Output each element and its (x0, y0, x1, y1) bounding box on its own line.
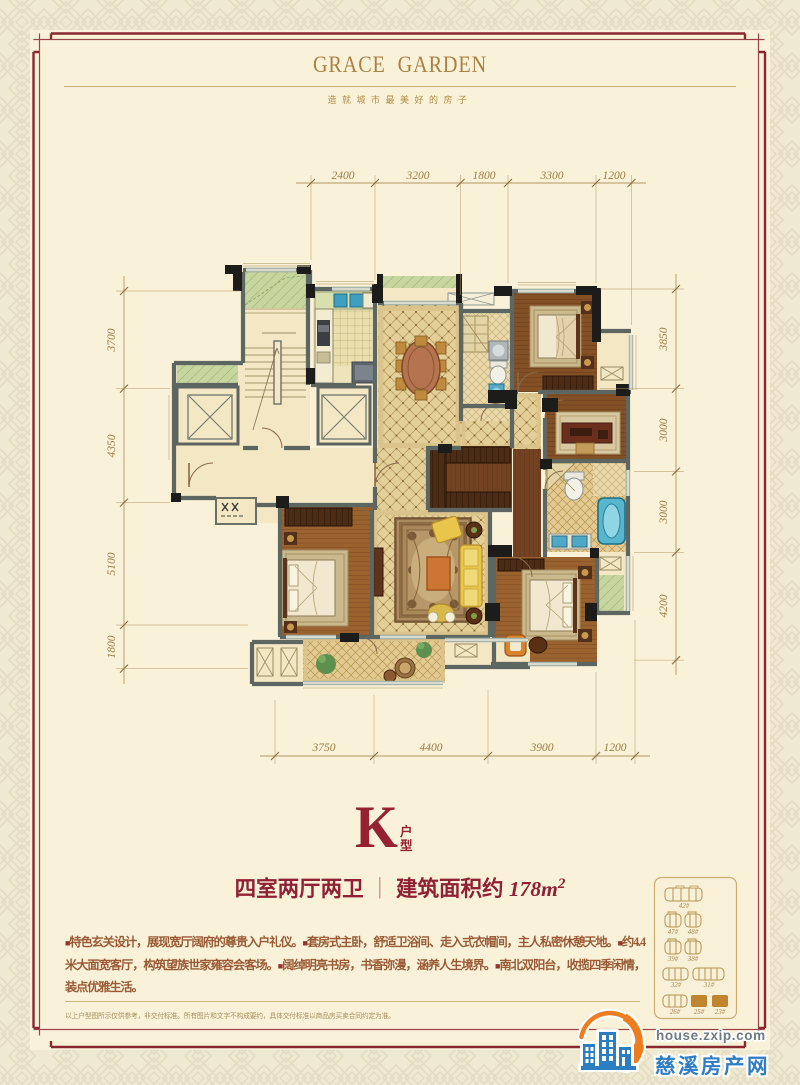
svg-text:23#: 23# (715, 1008, 726, 1016)
svg-text:42#: 42# (679, 902, 690, 910)
svg-text:32#: 32# (670, 981, 682, 989)
svg-text:26#: 26# (670, 1008, 681, 1016)
svg-text:25#: 25# (694, 1008, 705, 1016)
svg-text:48#: 48# (688, 928, 699, 936)
svg-text:39#: 39# (667, 955, 679, 963)
svg-text:47#: 47# (668, 928, 679, 936)
svg-text:31#: 31# (703, 981, 715, 989)
svg-text:38#: 38# (687, 955, 699, 963)
